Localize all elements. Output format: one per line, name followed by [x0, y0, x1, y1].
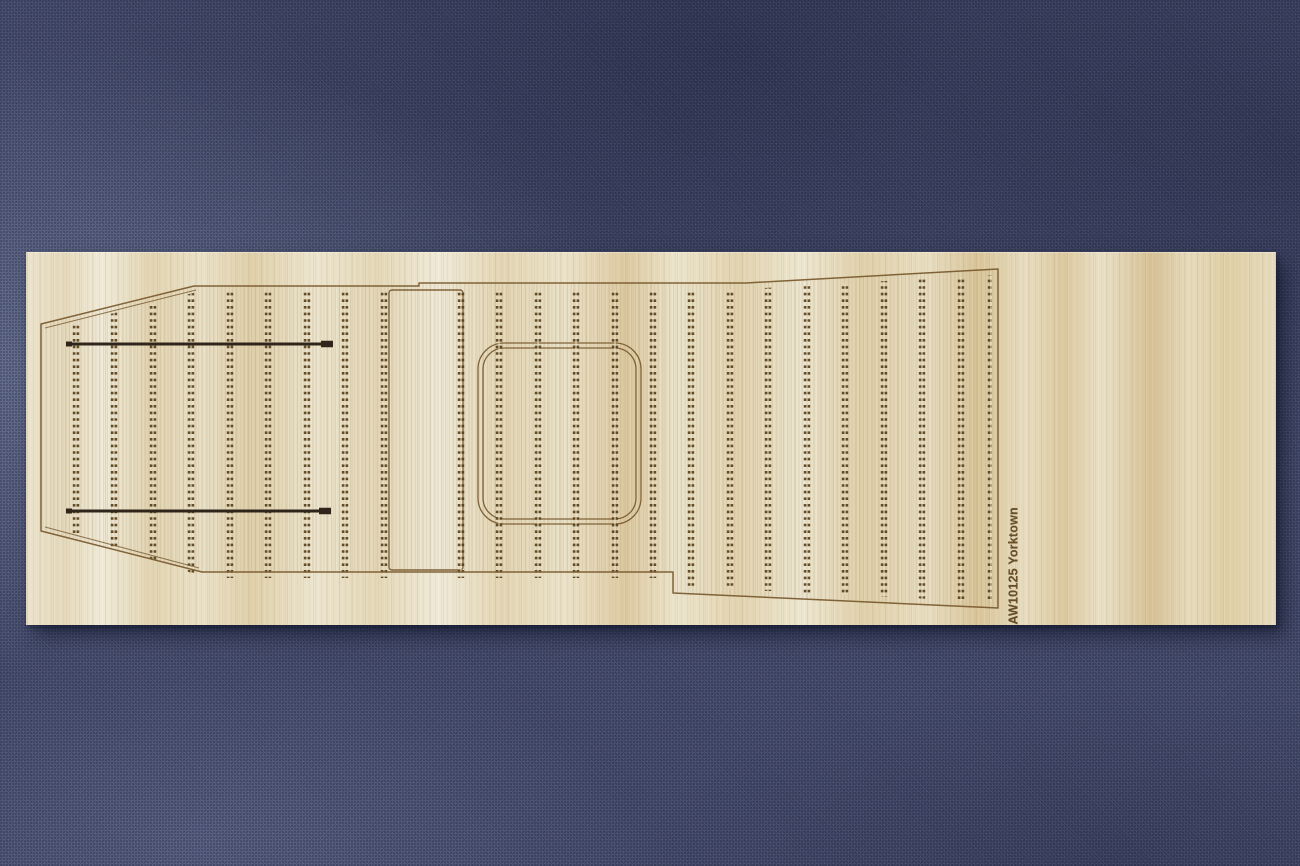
product-code-label: AW10125 Yorktown	[1006, 513, 1023, 625]
photo-background: AW10125 Yorktown	[0, 0, 1300, 866]
engraved-flight-deck-artwork	[27, 253, 1276, 625]
wood-veneer-sheet: AW10125 Yorktown	[26, 252, 1276, 625]
